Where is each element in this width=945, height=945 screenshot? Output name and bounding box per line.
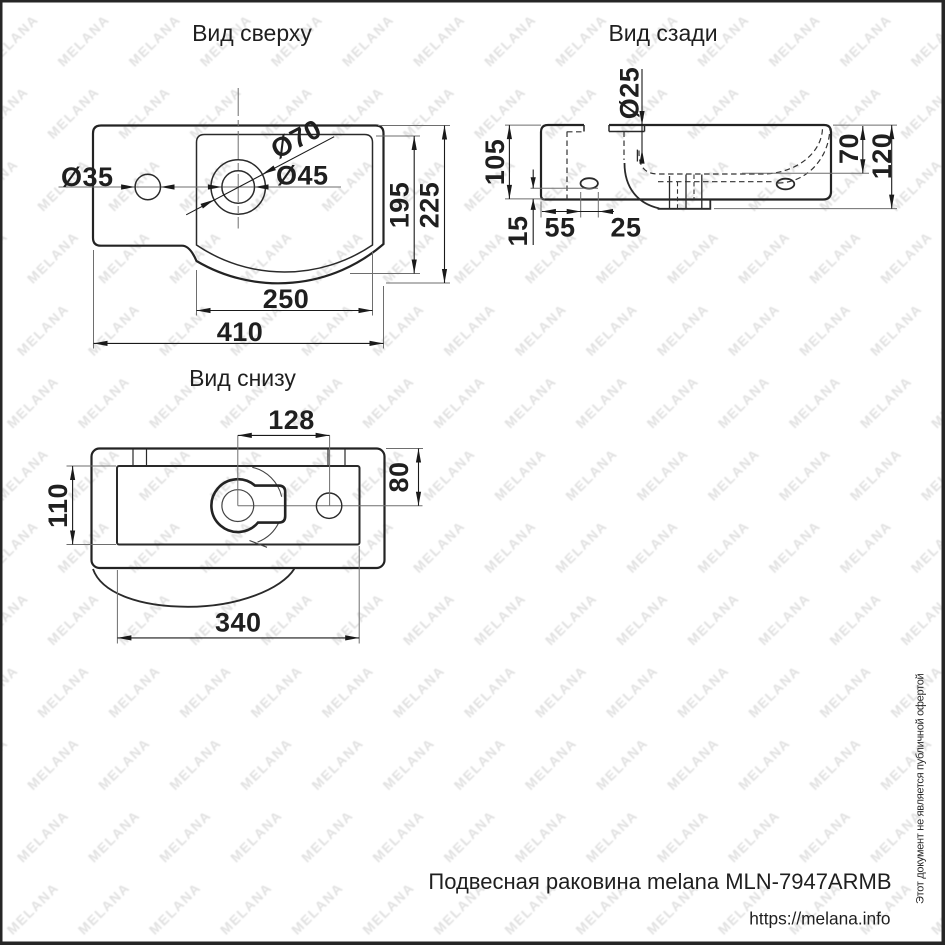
svg-text:340: 340 <box>215 608 262 638</box>
svg-text:Вид сзади: Вид сзади <box>608 20 717 46</box>
svg-text:Этот документ не является публ: Этот документ не является публичной офер… <box>915 673 927 904</box>
svg-text:250: 250 <box>263 284 310 314</box>
svg-text:https://melana.info: https://melana.info <box>749 909 890 929</box>
svg-text:410: 410 <box>217 317 264 347</box>
svg-text:Подвесная раковина melana MLN-: Подвесная раковина melana MLN-7947ARMB <box>428 869 891 894</box>
svg-text:25: 25 <box>610 213 641 243</box>
svg-text:120: 120 <box>867 133 897 180</box>
svg-text:70: 70 <box>834 133 864 164</box>
svg-text:128: 128 <box>268 405 315 435</box>
svg-text:55: 55 <box>544 213 575 243</box>
svg-text:Ø25: Ø25 <box>615 67 645 120</box>
svg-text:15: 15 <box>503 215 533 246</box>
svg-text:Ø35: Ø35 <box>61 162 114 192</box>
svg-text:Вид снизу: Вид снизу <box>189 365 296 391</box>
svg-text:Вид сверху: Вид сверху <box>192 20 312 46</box>
svg-text:110: 110 <box>43 483 73 528</box>
svg-text:225: 225 <box>415 182 445 229</box>
svg-text:195: 195 <box>384 182 414 229</box>
svg-text:105: 105 <box>480 139 510 186</box>
svg-text:80: 80 <box>384 461 414 492</box>
svg-text:Ø45: Ø45 <box>276 161 329 191</box>
